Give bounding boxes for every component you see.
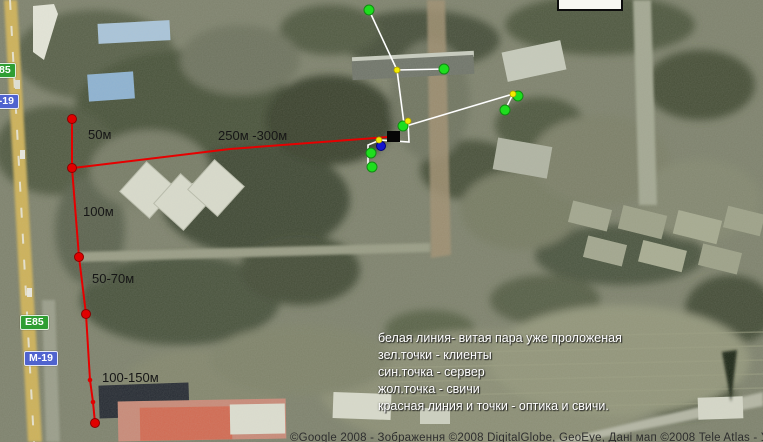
map-attribution: ©Google 2008 - Зображення ©2008 DigitalG… <box>290 432 763 442</box>
clipped-label-box <box>557 0 623 11</box>
distance-label: 50-70м <box>92 271 134 286</box>
network-overlay: 50м250м -300м100м50-70м100-150м <box>0 0 763 442</box>
legend-line: син.точка - сервер <box>378 364 622 381</box>
legend-line: белая линия- витая пара уже проложеная <box>378 330 622 347</box>
twisted-pair-line <box>368 121 409 167</box>
client-dot <box>366 148 376 158</box>
distance-label: 100м <box>83 204 114 219</box>
twisted-pair-line <box>397 70 404 124</box>
twisted-pair-line <box>397 69 444 70</box>
twisted-pair-line <box>505 94 513 110</box>
switch-dot <box>394 67 400 73</box>
server-dot <box>377 142 386 151</box>
switch-dot <box>510 91 516 97</box>
optic-trunk-line <box>73 137 388 168</box>
road-badge-m-19: M-19 <box>24 351 58 366</box>
distance-label: 100-150м <box>102 370 159 385</box>
client-dot <box>500 105 510 115</box>
optic-node-dot <box>68 115 77 124</box>
distance-label: 250м -300м <box>218 128 287 143</box>
twisted-pair-line <box>369 10 397 70</box>
optic-riser-line <box>72 119 95 423</box>
map-viewport[interactable]: 50м250м -300м100м50-70м100-150м E85M-19E… <box>0 0 763 442</box>
client-dot <box>398 121 408 131</box>
optic-node-dot <box>91 419 100 428</box>
optic-node-dot <box>75 253 84 262</box>
legend-line: жол.точка - свичи <box>378 381 622 398</box>
client-dot <box>439 64 449 74</box>
map-legend: белая линия- витая пара уже проложенаязе… <box>378 330 622 415</box>
switch-dot <box>405 118 411 124</box>
road-badge-m-19: M-19 <box>0 94 19 109</box>
switch-dot <box>376 137 382 143</box>
satellite-background <box>0 0 763 442</box>
client-dot <box>513 91 523 101</box>
distance-label: 50м <box>88 127 111 142</box>
optic-node-dot-small <box>88 378 93 383</box>
road-badge-e85: E85 <box>0 63 16 78</box>
legend-line: зел.точки - клиенты <box>378 347 622 364</box>
optic-node-dot <box>68 164 77 173</box>
legend-line: красная линия и точки - оптика и свичи. <box>378 398 622 415</box>
optic-node-dot-small <box>91 400 96 405</box>
twisted-pair-line <box>406 94 513 126</box>
black-square-marker <box>387 131 400 142</box>
optic-node-dot <box>82 310 91 319</box>
client-dot <box>367 162 377 172</box>
client-dot <box>364 5 374 15</box>
road-badge-e85: E85 <box>20 315 49 330</box>
